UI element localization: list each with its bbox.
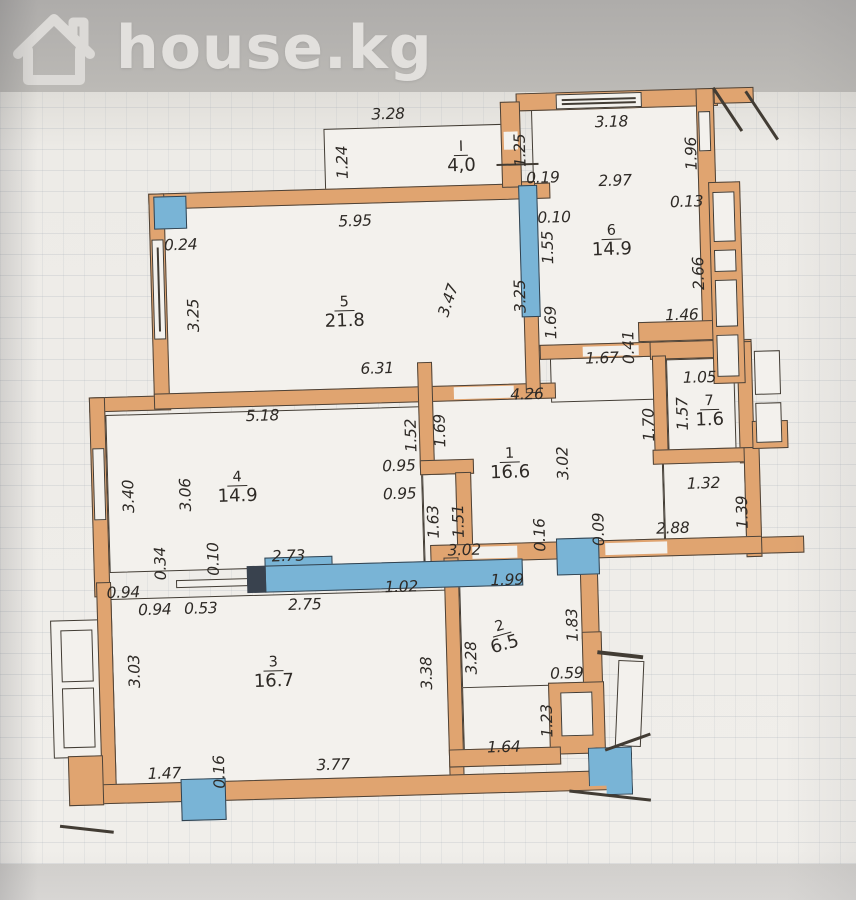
dim-label: 0.41 [619,331,638,365]
door-lintel [597,650,643,659]
dim-label: 2.66 [689,257,708,291]
dim-label: 0.59 [550,664,584,683]
dim-label: 0.95 [382,456,416,475]
dim-label: 1.46 [665,305,699,324]
dim-label: 0.16 [530,518,549,552]
shaft-slot [755,402,782,443]
dim-label: 3.06 [176,478,195,512]
niche-slot [560,692,593,737]
dim-label: 6.31 [360,359,394,378]
dim-label: 1.69 [541,306,560,340]
dim-label: 3.28 [462,641,481,675]
shaft-slot [716,334,739,377]
dim-label: 0.13 [670,192,704,211]
dim-label: 2.73 [271,547,305,566]
dim-label: 1.39 [733,495,752,529]
shaft-slot [754,350,781,395]
shaft-slot [714,249,737,272]
dim-label: 1.70 [639,408,658,442]
dim-label: 5.95 [338,212,372,231]
loggia-pane [60,629,93,682]
wall-segment [68,755,104,806]
dim-label: 0.94 [106,583,140,602]
dim-label: 3.02 [447,541,481,560]
dim-label: 1.64 [487,738,521,757]
dim-label: 0.24 [164,235,198,254]
wall-segment [582,631,604,688]
door-opening [454,386,514,400]
room-label-5: 5 21.8 [324,295,365,332]
dim-label: 2.75 [288,595,322,614]
dim-label: 0.53 [184,599,218,618]
dim-label: 1.23 [538,704,557,738]
dim-label: 1.55 [538,231,557,265]
dim-label: 1.47 [147,764,181,783]
window-slot [92,448,106,520]
dim-label: 0.10 [537,208,571,227]
dim-label: 1.02 [384,577,418,596]
room-label-1: 1 16.6 [489,446,530,483]
room-label-7: 7 1.6 [695,394,725,431]
dim-label: 3.18 [594,112,628,131]
dim-label: 1.83 [563,608,582,642]
dim-label: 0.10 [204,542,223,576]
dim-label: 3.02 [553,446,572,480]
dim-label: 0.94 [138,600,172,619]
dim-label: 1.57 [673,397,692,431]
window [153,196,187,230]
dim-label: 1.52 [402,419,421,453]
dim-label: 1.24 [333,145,352,179]
dim-label: 2.97 [598,171,632,190]
dim-label: 1.51 [449,504,468,538]
room-label-6: 6 14.9 [591,223,632,260]
dim-label: 3.03 [125,654,144,688]
dim-label: 5.18 [246,406,280,425]
thin-partition [176,578,248,588]
shaft-slot [712,191,735,242]
room-label-4: 4 14.9 [217,470,258,507]
dim-label: 4.26 [510,385,544,404]
dim-label: 3.28 [371,105,405,124]
dim-label: 1.99 [490,570,524,589]
section-mark [744,91,778,141]
dim-label: 3.25 [184,299,203,333]
dim-label: 3.25 [511,280,530,314]
ground-line [60,825,114,834]
dim-label: 1.32 [687,474,721,493]
dim-label: 1.69 [430,414,449,448]
floor-plan: I 4,0 6 14.9 5 21.8 7 1.6 1 16.6 4 14.9 … [0,0,856,900]
dim-label: 2.88 [656,519,690,538]
photo-of-floor-plan: house.kg [0,0,856,900]
dim-label: 0.34 [151,547,170,581]
dim-label: 1.67 [585,349,619,368]
dim-label: 3.77 [316,755,350,774]
dim-label: 1.63 [424,505,443,539]
dim-label: 3.40 [119,480,138,514]
dim-label: 0.95 [383,484,417,503]
window-end-cap [247,566,267,594]
dim-label: 0.19 [526,168,560,187]
dim-label: 1.25 [511,133,530,167]
loggia-pane [62,687,96,748]
door-opening [605,541,667,555]
dim-label: 1.05 [683,368,717,387]
room-label-balcony: I 4,0 [446,140,476,177]
room-label-3: 3 16.7 [253,655,294,692]
dim-label: 0.16 [210,755,229,789]
shaft-slot [715,279,738,327]
door-leaf [615,660,645,747]
wall-segment [653,447,755,465]
dim-label: 0.09 [589,512,608,546]
dim-label: 1.96 [682,137,701,171]
dim-label: 3.38 [417,656,436,690]
